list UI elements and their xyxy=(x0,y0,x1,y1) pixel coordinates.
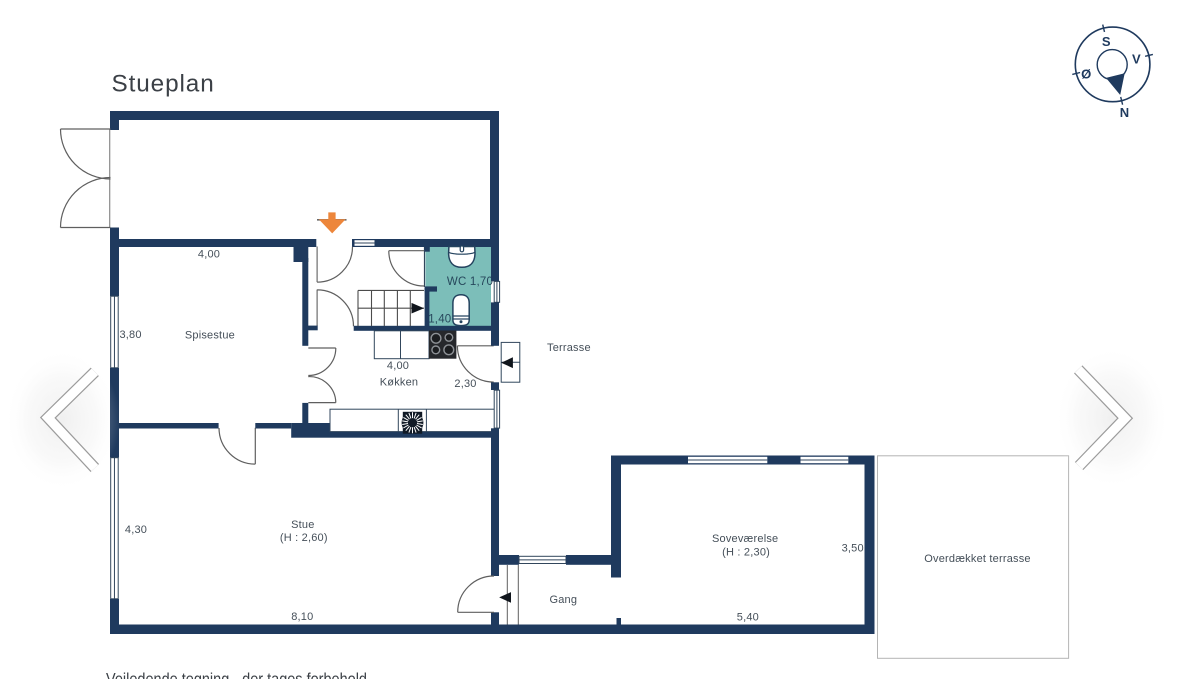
svg-text:S: S xyxy=(1102,34,1111,49)
svg-text:2,30: 2,30 xyxy=(454,378,476,390)
svg-text:5,40: 5,40 xyxy=(737,611,759,623)
svg-text:1,40: 1,40 xyxy=(428,313,451,325)
svg-text:Overdækket terrasse: Overdækket terrasse xyxy=(924,553,1031,565)
svg-text:3,50: 3,50 xyxy=(842,542,864,554)
svg-text:Soveværelse: Soveværelse xyxy=(712,533,778,545)
svg-text:Vejledende tegning - der tages: Vejledende tegning - der tages forbehold xyxy=(106,671,367,679)
svg-text:Spisestue: Spisestue xyxy=(185,330,235,342)
svg-text:(H : 2,30): (H : 2,30) xyxy=(722,547,770,559)
svg-text:8,10: 8,10 xyxy=(291,611,313,623)
svg-text:Terrasse: Terrasse xyxy=(547,342,591,354)
svg-text:Gang: Gang xyxy=(549,594,577,606)
svg-text:4,00: 4,00 xyxy=(387,360,409,372)
svg-text:4,00: 4,00 xyxy=(198,249,220,261)
svg-text:V: V xyxy=(1132,51,1141,66)
svg-text:(H : 2,60): (H : 2,60) xyxy=(280,532,328,544)
svg-text:4,30: 4,30 xyxy=(125,524,147,536)
svg-text:WC 1,70: WC 1,70 xyxy=(447,276,493,288)
svg-text:3,80: 3,80 xyxy=(119,329,141,341)
svg-text:Stueplan: Stueplan xyxy=(112,71,215,98)
svg-text:Stue: Stue xyxy=(291,519,314,531)
svg-text:N: N xyxy=(1120,105,1129,120)
svg-text:Ø: Ø xyxy=(1081,67,1091,82)
svg-text:Køkken: Køkken xyxy=(380,377,419,389)
